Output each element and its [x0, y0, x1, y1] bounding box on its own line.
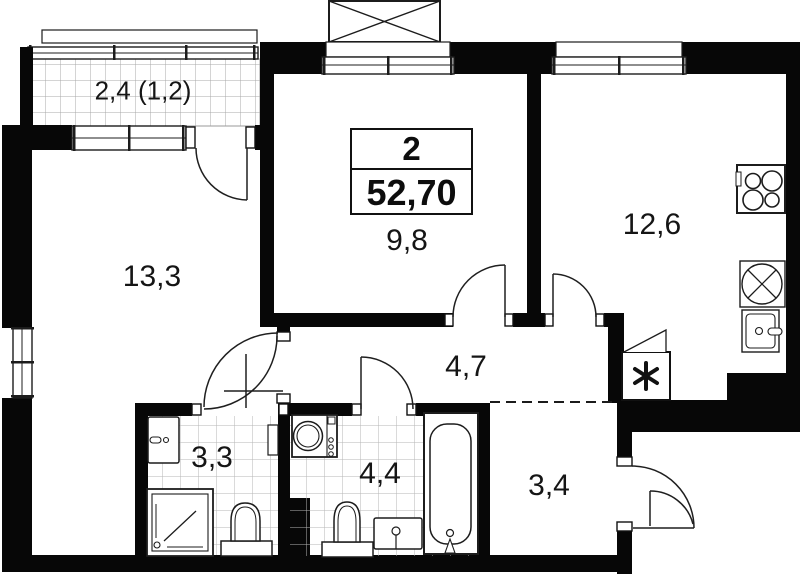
- door-kitchen: [553, 274, 596, 317]
- washbasin-icon: [374, 518, 422, 549]
- balcony-glazing-window: [28, 30, 258, 60]
- vent-flap: [624, 330, 666, 352]
- window-living-room-side: [2, 327, 34, 398]
- window-bedroom: [322, 42, 454, 75]
- stove-icon: [736, 165, 785, 213]
- room-label-bathroom: 4,4: [359, 457, 401, 491]
- door-balcony: [196, 148, 247, 200]
- window-living-room-balcony: [72, 125, 186, 151]
- washing-machine-icon: [292, 415, 337, 457]
- window-kitchen: [552, 42, 686, 75]
- door-bathroom: [361, 357, 413, 409]
- floor-plan: 2,4 (1,2) 13,3 9,8 12,6 4,7 3,3 4,4 3,4 …: [0, 0, 800, 574]
- room-label-living-room: 13,3: [123, 260, 181, 294]
- appliance-icon: [742, 310, 782, 352]
- door-living-room: [204, 336, 283, 409]
- room-label-kitchen: 12,6: [623, 208, 681, 242]
- bathtub-icon: [424, 413, 478, 554]
- door-bedroom: [453, 265, 505, 317]
- door-shower-room: [204, 333, 278, 408]
- room-label-balcony: 2,4 (1,2): [95, 76, 192, 107]
- vent-shaft-icon: [622, 330, 670, 400]
- door-entrance: [632, 466, 694, 528]
- crossed-balcony-box: [329, 1, 440, 42]
- room-label-hallway: 4,7: [445, 350, 487, 384]
- shower-tray-icon: [147, 489, 213, 556]
- total-area: 52,70: [352, 170, 471, 215]
- towel-rail-icon: [268, 425, 278, 455]
- apartment-info-badge: 2 52,70: [350, 128, 473, 215]
- washbasin-small-icon: [148, 417, 179, 463]
- room-label-bedroom: 9,8: [386, 224, 428, 258]
- rooms-count: 2: [352, 130, 471, 170]
- room-label-entry-hall: 3,4: [528, 469, 570, 503]
- room-label-shower-room: 3,3: [191, 441, 233, 475]
- kitchen-sink-icon: [740, 261, 785, 307]
